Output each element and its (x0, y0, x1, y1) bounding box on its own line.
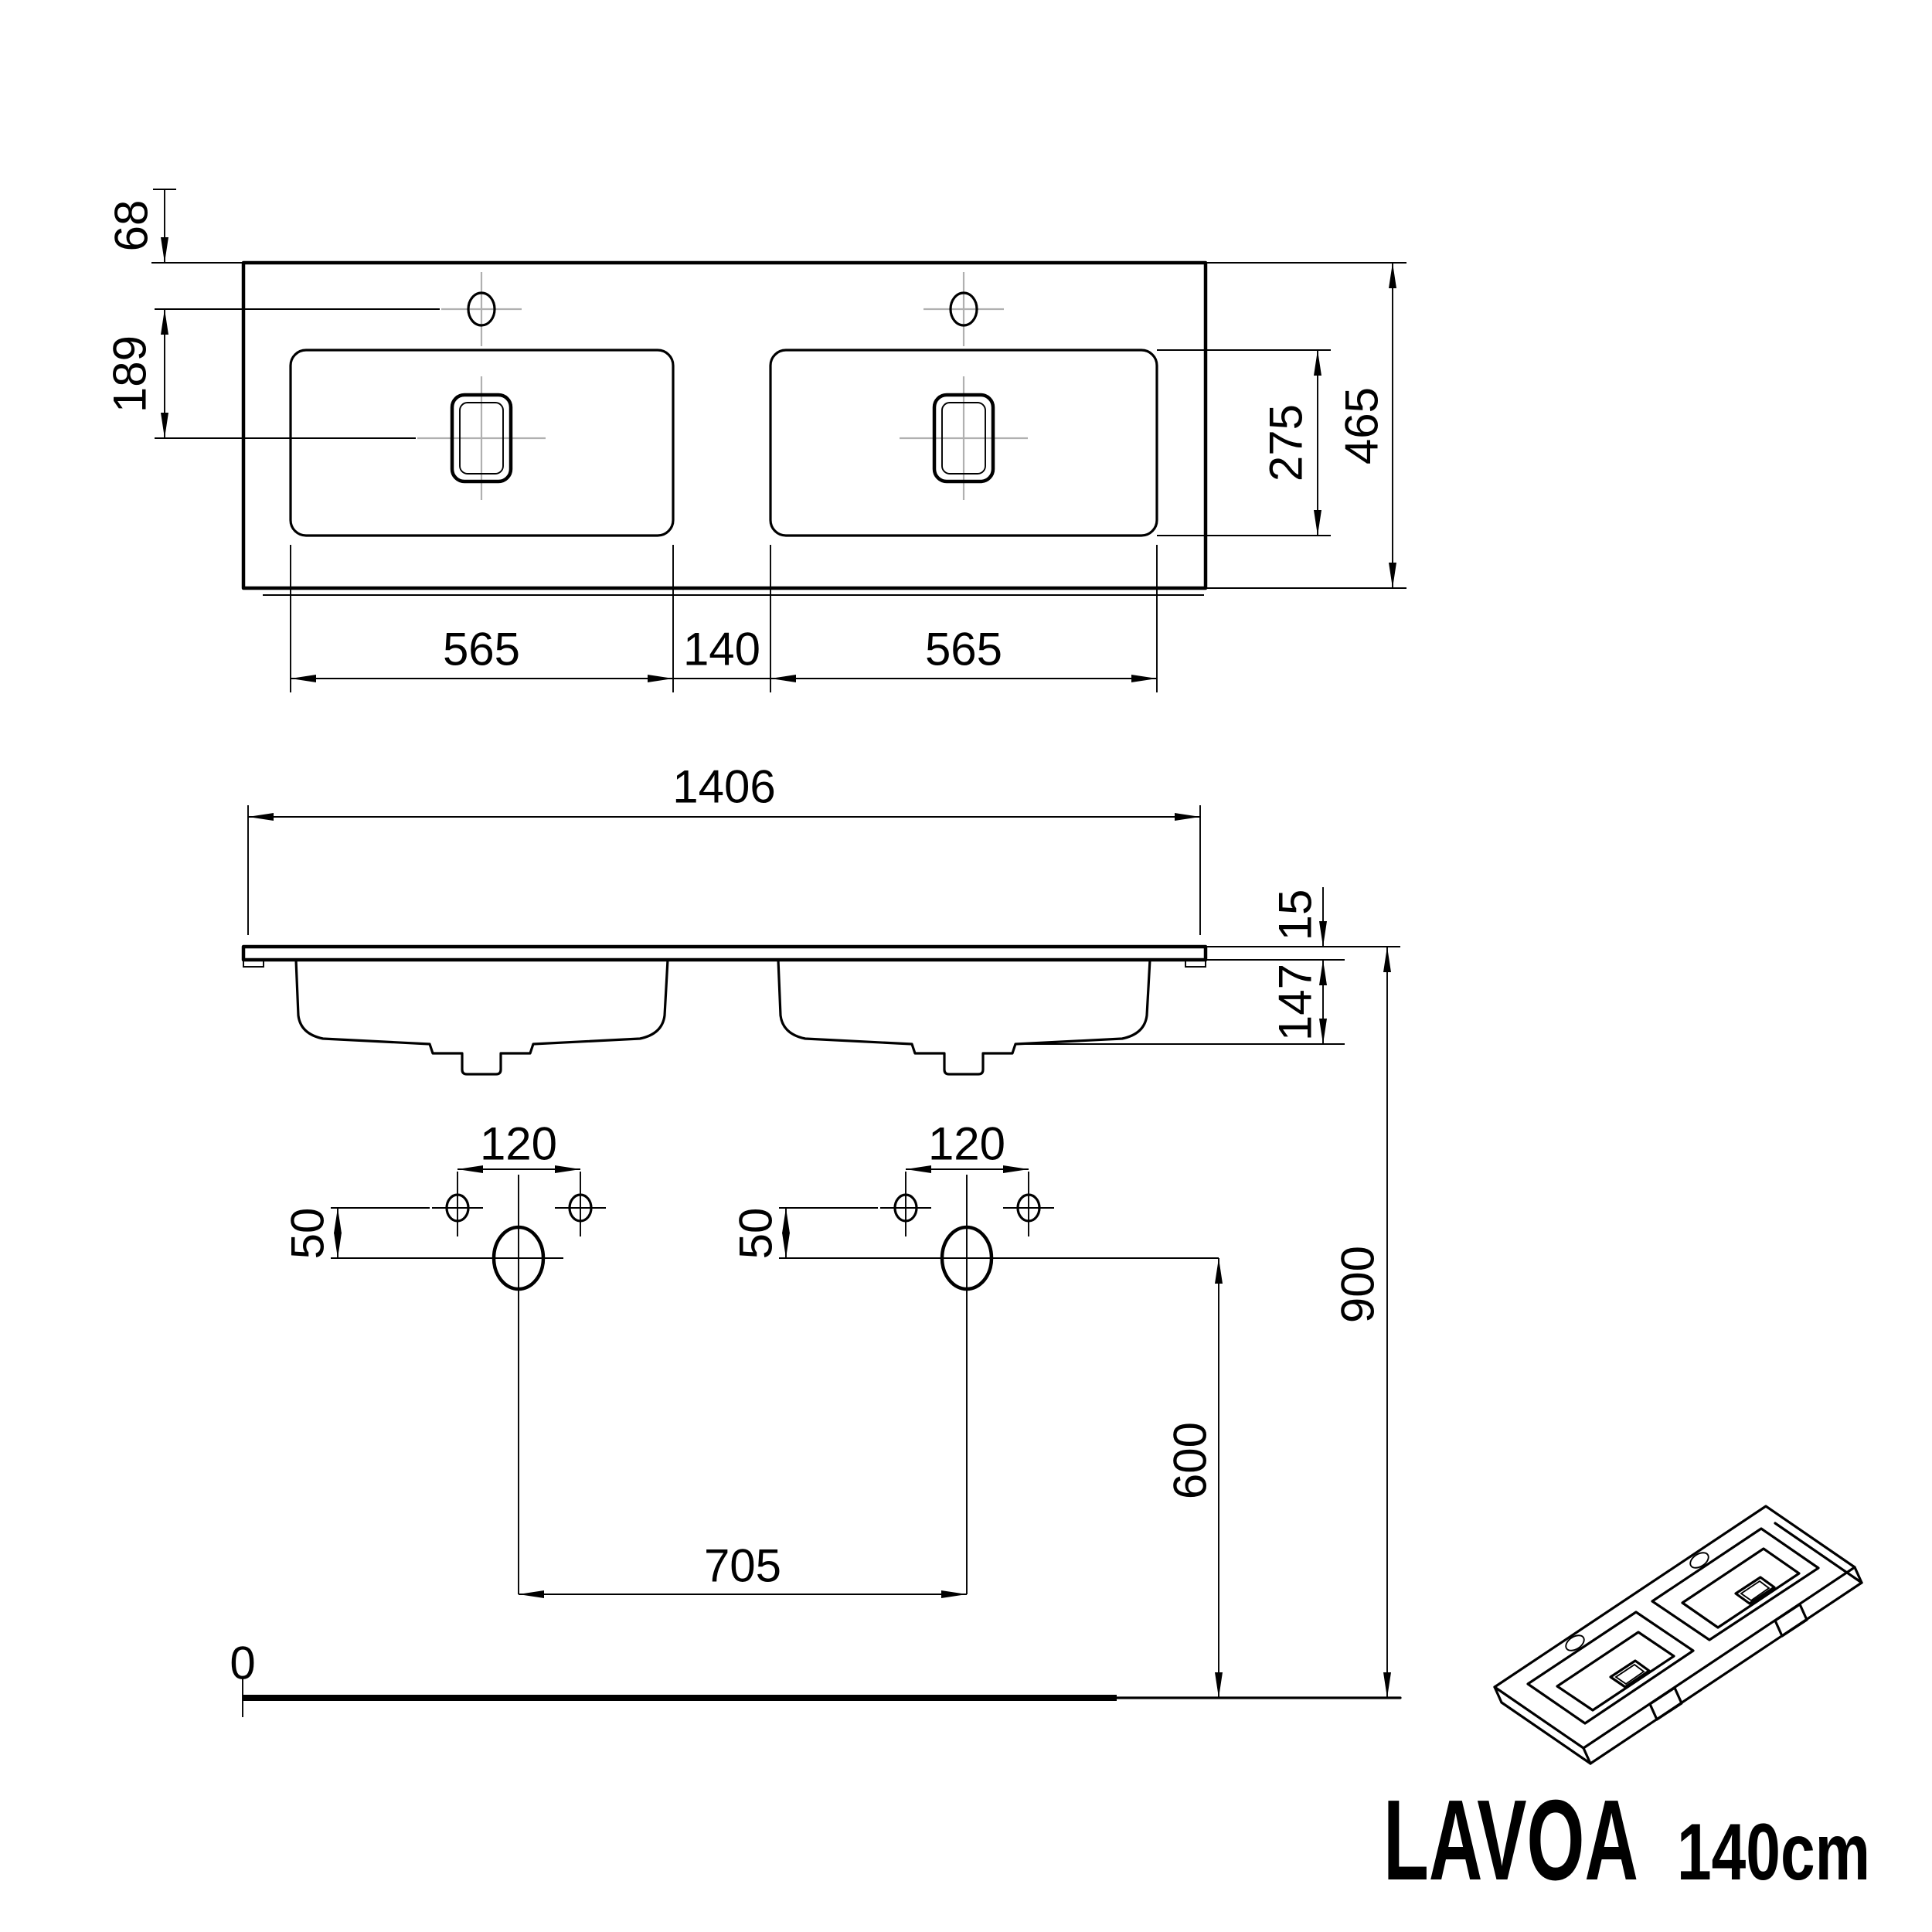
plan-left-dimensions: 68 189 (104, 189, 440, 438)
dim-fixing-span-left: 120 (480, 1118, 557, 1170)
iso-left-trap (1650, 1688, 1682, 1719)
dim-drain-span: 705 (704, 1540, 781, 1592)
technical-drawing-page: 68 189 465 275 565 140 (0, 0, 1932, 1932)
dim-faucet-to-drain: 189 (104, 335, 156, 413)
dim-drain-height: 600 (1165, 1422, 1216, 1499)
front-view: 1406 15 147 (243, 761, 1400, 1075)
dim-right-bowl-width: 565 (925, 624, 1002, 675)
floor-line: 0 (230, 1638, 1400, 1718)
dim-overall-depth: 465 (1336, 387, 1388, 464)
front-right-dimensions: 15 147 (1020, 887, 1400, 1044)
right-hole-group: 120 50 (730, 1118, 1055, 1595)
left-hole-group: 120 50 (282, 1118, 607, 1595)
iso-right-faucet-hole (1688, 1549, 1712, 1571)
product-name: LAVOA (1383, 1777, 1638, 1904)
dim-bowl-depth: 147 (1270, 964, 1321, 1041)
dim-left-bowl-width: 565 (443, 624, 520, 675)
dim-faucet-offset-right: 50 (730, 1208, 782, 1260)
iso-left-bowl-rim (1528, 1612, 1693, 1723)
product-size: 140cm (1677, 1808, 1870, 1897)
dim-floor-level: 0 (230, 1638, 255, 1689)
countertop-outline (243, 263, 1206, 588)
logo: LAVOA 140cm (1383, 1777, 1870, 1904)
washbasin-dimension-drawing: 68 189 465 275 565 140 (0, 0, 1932, 1932)
isometric-thumbnail (1495, 1506, 1862, 1764)
dim-bowl-front-back: 275 (1260, 404, 1312, 481)
installation-view: 120 50 120 50 (230, 947, 1400, 1717)
iso-right-trap (1775, 1604, 1807, 1636)
dim-rim-height: 900 (1332, 1246, 1384, 1323)
dim-bowl-gap: 140 (683, 624, 760, 675)
plan-bottom-dimensions: 565 140 565 (291, 545, 1157, 692)
dim-faucet-offset-left: 50 (282, 1208, 334, 1260)
dim-back-to-faucet: 68 (106, 200, 158, 252)
plan-right-dimensions: 465 275 (1157, 263, 1406, 588)
faucet-holes (441, 272, 1004, 346)
iso-right-bowl-rim (1652, 1529, 1818, 1640)
left-bowl-section (296, 960, 668, 1074)
iso-slab-top (1495, 1506, 1855, 1748)
drain-openings (417, 376, 1028, 500)
dim-rim-thickness: 15 (1270, 889, 1321, 941)
right-bowl-section (778, 960, 1150, 1074)
dim-overall-width: 1406 (672, 761, 775, 813)
dim-fixing-span-right: 120 (928, 1118, 1005, 1170)
plan-view: 68 189 465 275 565 140 (104, 189, 1407, 692)
iso-left-faucet-hole (1563, 1632, 1587, 1654)
slab-section (243, 947, 1206, 960)
